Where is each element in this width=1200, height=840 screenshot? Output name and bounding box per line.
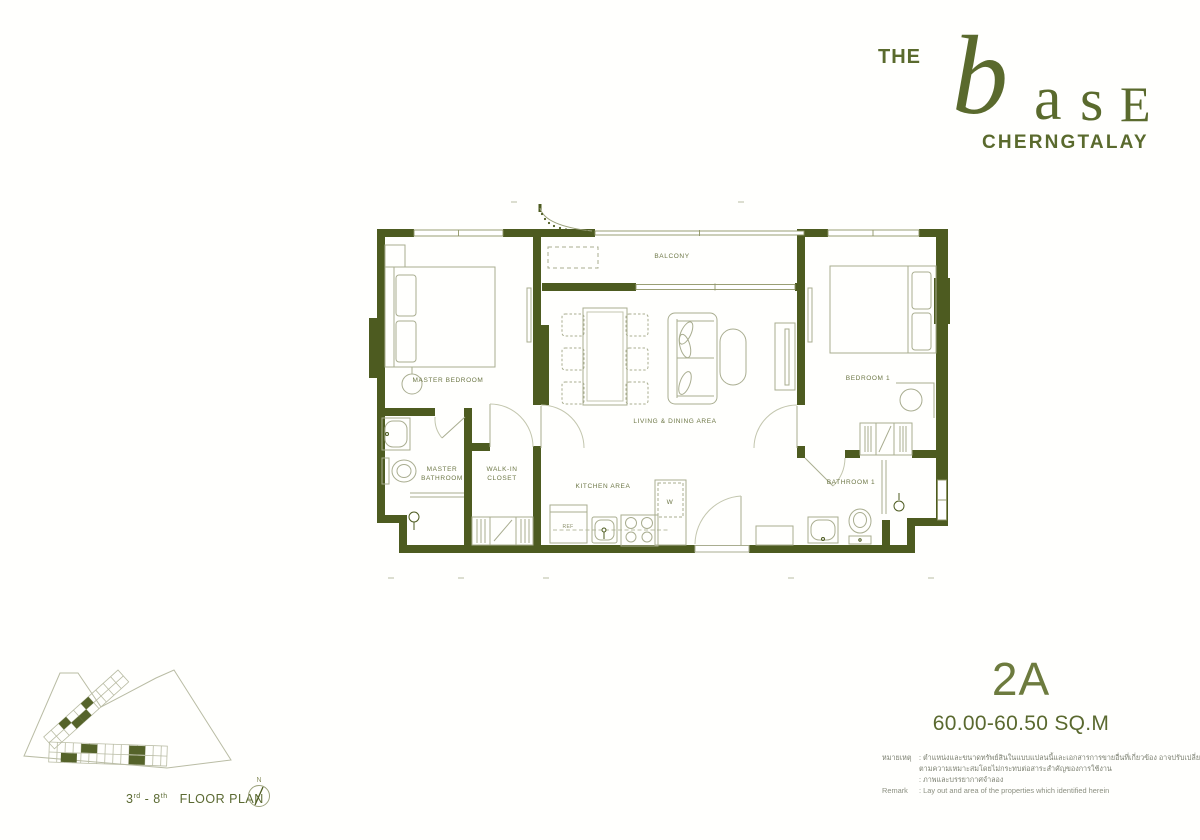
brand-letter-e: E [1120, 79, 1151, 129]
building-bar [49, 742, 168, 766]
remark-thai-label: หมายเหตุ [882, 752, 915, 763]
floor-plan: MASTER BEDROOM BALCONY BEDROOM 1 LIVING … [368, 190, 950, 590]
page: { "colors": { "brand": "#5a6a2d", "wall"… [0, 0, 1200, 840]
label-master-bathroom-1: MASTER [427, 466, 458, 473]
remark-block: หมายเหตุ : ตำแหน่งและขนาดทรัพย์สินในแบบแ… [870, 752, 1172, 797]
label-walkin-closet-2: CLOSET [487, 475, 517, 482]
label-bathroom1: BATHROOM 1 [827, 479, 876, 486]
label-balcony: BALCONY [654, 253, 689, 260]
brand-letter-a: a [1034, 68, 1062, 130]
brand-letter-b: b [952, 20, 1008, 132]
brand-the: THE [878, 46, 921, 69]
label-walkin-closet-1: WALK-IN [486, 466, 517, 473]
floor-number-end: - 8 [145, 792, 161, 806]
unit-area: 60.00-60.50 SQ.M [870, 712, 1172, 736]
floor-suffix-end: th [161, 793, 168, 800]
floor-suffix-start: rd [133, 793, 140, 800]
label-kitchen: KITCHEN AREA [576, 483, 631, 490]
brand-subtitle: CHERNGTALAY [982, 132, 1149, 154]
interior-doors [541, 405, 797, 448]
unit-info: 2A 60.00-60.50 SQ.M หมายเหตุ : ตำแหน่งแล… [870, 652, 1172, 797]
kitchen-fixtures [548, 247, 793, 552]
master-bathroom-fixtures [382, 417, 465, 530]
label-washer: W [667, 499, 674, 506]
remark-thai-line1: : ตำแหน่งและขนาดทรัพย์สินในแบบแปลนนี้และ… [919, 752, 1200, 763]
label-living-dining: LIVING & DINING AREA [633, 418, 716, 425]
brand-logo: THE b a s E CHERNGTALAY [856, 26, 1166, 166]
site-boundary [24, 670, 231, 768]
label-master-bathroom-2: BATHROOM [421, 475, 463, 482]
unit-name: 2A [870, 652, 1172, 706]
remark-en-label: Remark [882, 785, 915, 796]
remark-thai-line2: ตามความเหมาะสมโดยไม่กระทบต่อสาระสำคัญของ… [919, 763, 1112, 774]
label-master-bedroom: MASTER BEDROOM [413, 377, 484, 384]
balcony-louver [540, 208, 592, 233]
north-label: N [256, 777, 261, 784]
living-dining-furniture [562, 288, 812, 405]
brand-letter-s: s [1080, 70, 1103, 130]
bedroom1-furniture [830, 266, 936, 455]
remark-en-line: : Lay out and area of the properties whi… [919, 785, 1109, 796]
label-bedroom1: BEDROOM 1 [846, 375, 890, 382]
north-arrow: N [244, 774, 274, 810]
site-key-plan [22, 660, 272, 795]
label-refrigerator: REF [563, 524, 574, 530]
master-bedroom-furniture [385, 245, 531, 394]
remark-thai-line3: : ภาพและบรรยากาศจำลอง [919, 774, 1003, 785]
